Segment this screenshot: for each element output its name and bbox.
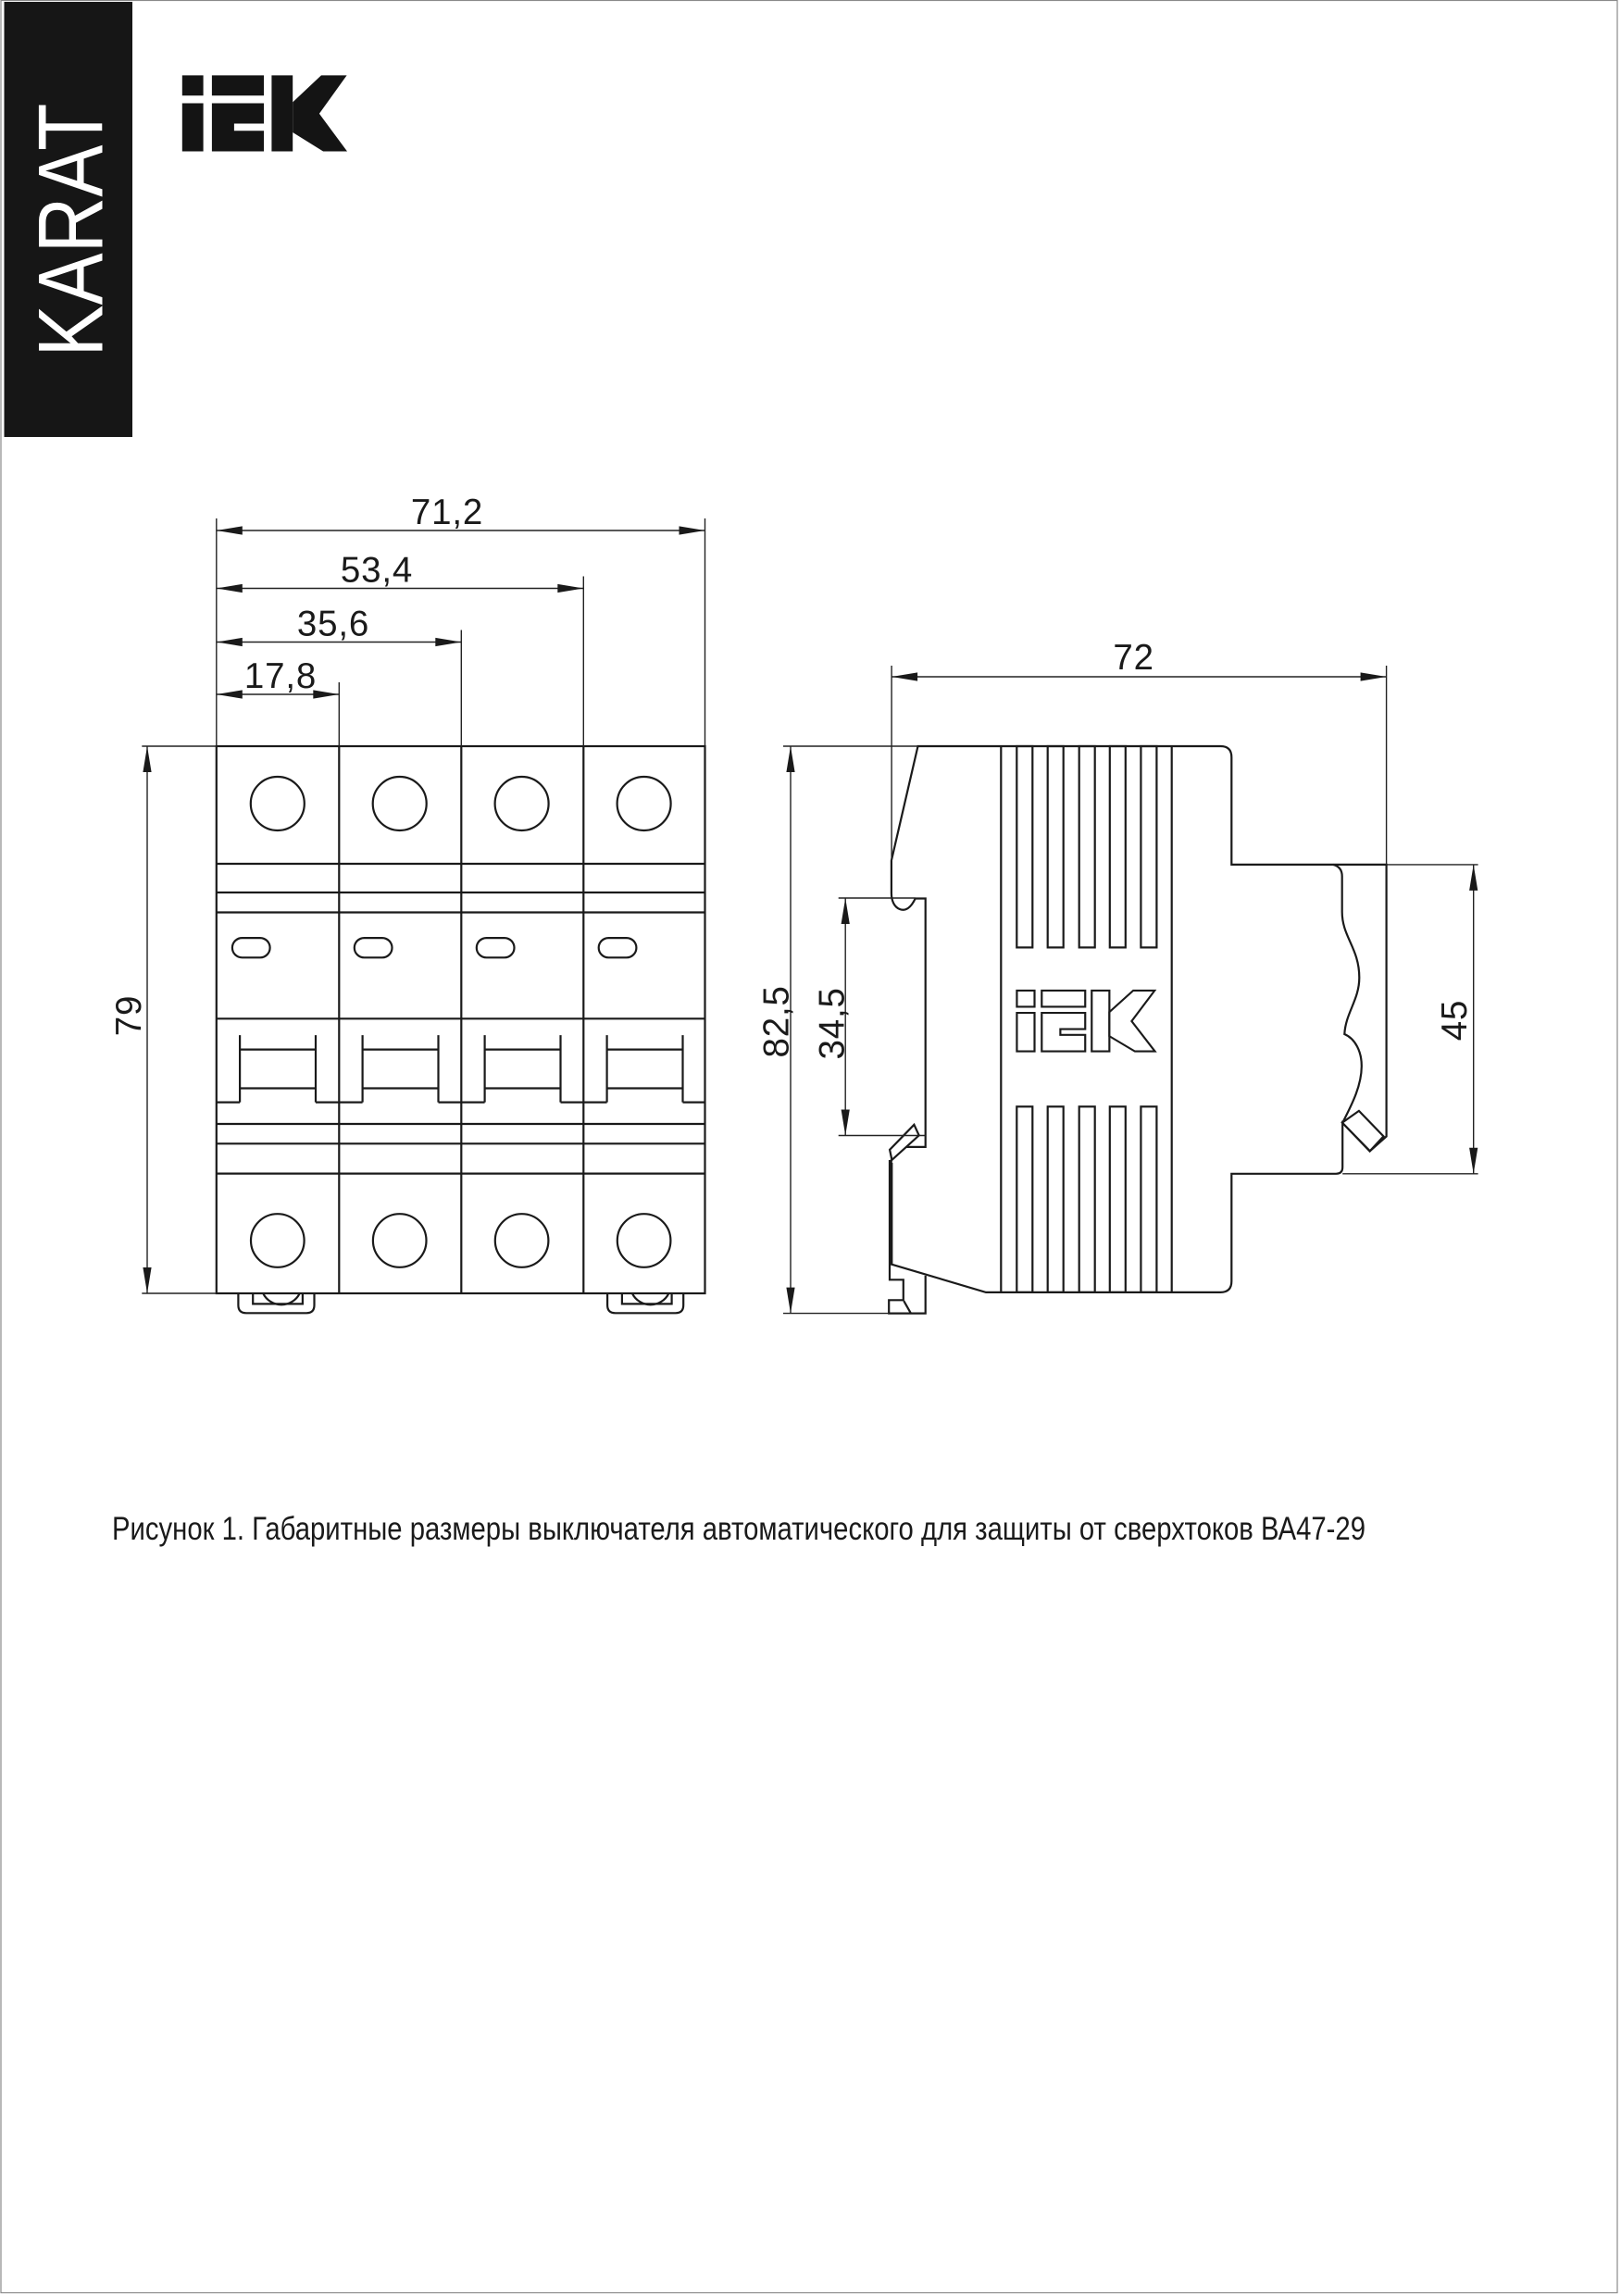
svg-text:82,5: 82,5 <box>756 985 796 1057</box>
svg-text:79: 79 <box>109 995 149 1036</box>
svg-text:72: 72 <box>1113 638 1153 678</box>
svg-text:35,6: 35,6 <box>297 605 369 644</box>
svg-text:45: 45 <box>1435 1000 1475 1041</box>
svg-text:71,2: 71,2 <box>411 493 483 532</box>
svg-text:KARAT: KARAT <box>19 104 122 357</box>
svg-text:17,8: 17,8 <box>244 656 317 696</box>
svg-text:34,5: 34,5 <box>813 987 853 1059</box>
svg-text:Рисунок 1. Габаритные размеры: Рисунок 1. Габаритные размеры выключател… <box>112 1510 1365 1547</box>
svg-text:53,4: 53,4 <box>341 551 413 591</box>
